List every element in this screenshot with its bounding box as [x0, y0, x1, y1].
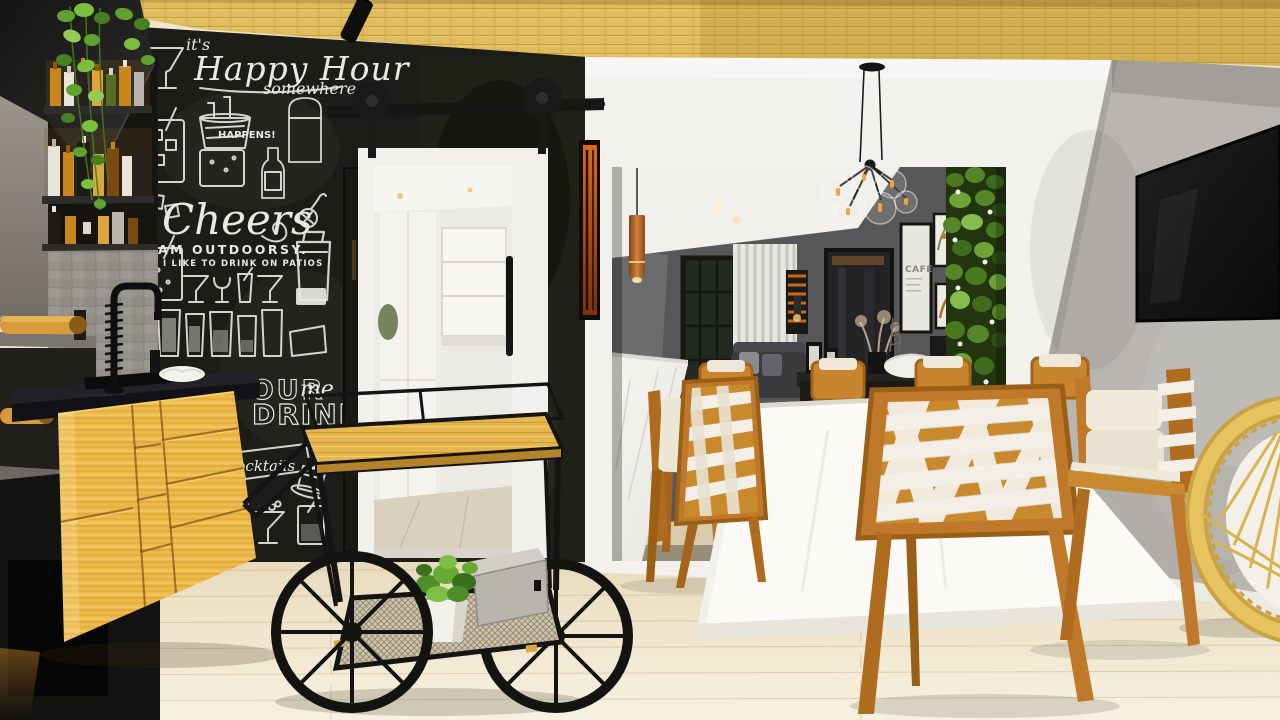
chalk-text-cheers: Cheers [162, 195, 313, 244]
cart-wheel [276, 556, 428, 708]
gallery-frame-cafe: CAFÉ [901, 224, 933, 332]
chalk-text-somewhere: somewhere [263, 79, 356, 98]
interior-render: CAFÉ [0, 0, 1280, 720]
artwork-orange [579, 140, 600, 320]
chalk-solid-cup [296, 288, 326, 305]
towel [159, 366, 205, 382]
chalk-text-happens: HAPPENS! [218, 130, 276, 141]
cart-chest [468, 548, 548, 626]
door-opening [374, 166, 512, 548]
concrete-pillar [0, 96, 48, 344]
chalk-text-outdoorsy: AM OUTDOORSY. [158, 242, 308, 257]
soap-pump [150, 350, 160, 374]
door-handle [506, 256, 513, 356]
poster-cafe-title: CAFÉ [905, 263, 933, 275]
